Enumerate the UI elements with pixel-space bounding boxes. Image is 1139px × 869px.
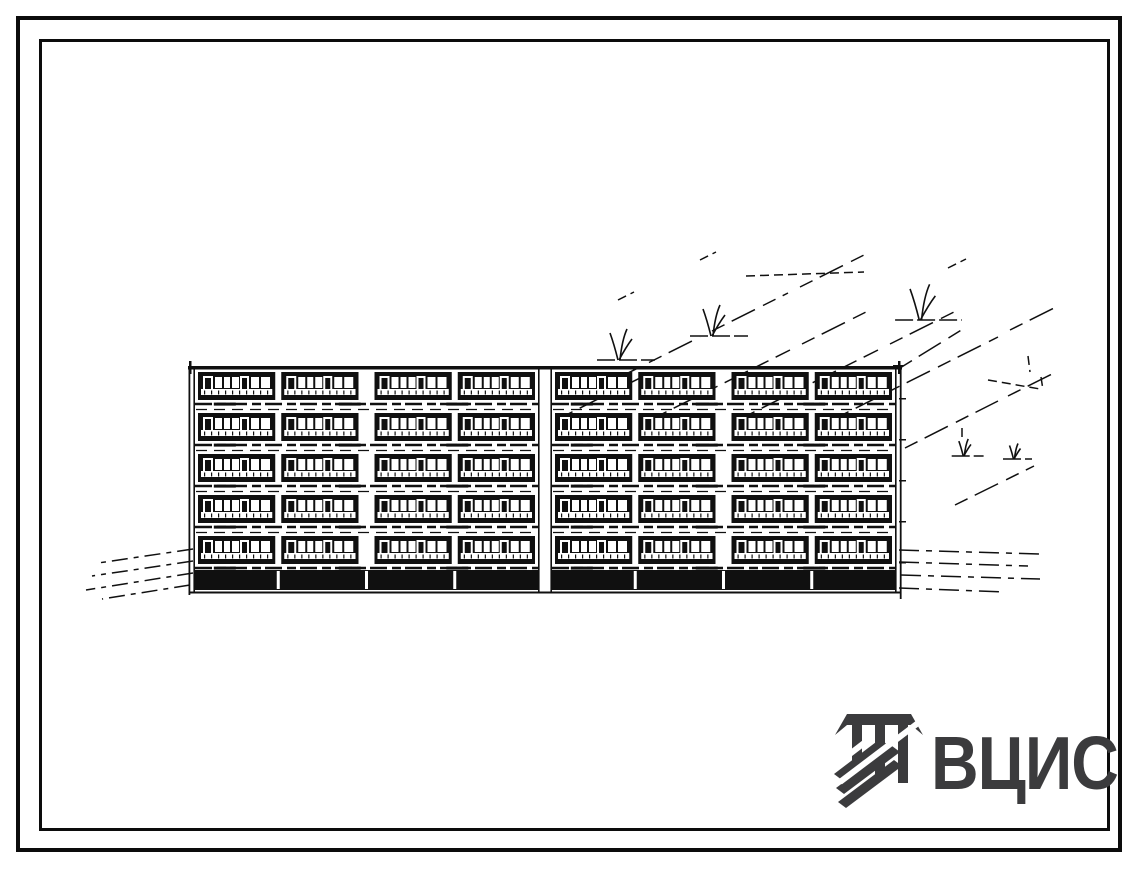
shrub-symbol [952,439,984,456]
logo: ВЦИС [832,704,1118,808]
logo-text: ВЦИС [931,725,1118,800]
building-facade [188,361,906,599]
shrub-symbol [895,284,962,320]
shrub-symbol [1003,444,1032,460]
landscape-hatch [560,252,1058,505]
logo-emblem-icon [832,704,926,808]
shrub-symbol [690,305,748,336]
shrub-symbol [597,329,655,360]
